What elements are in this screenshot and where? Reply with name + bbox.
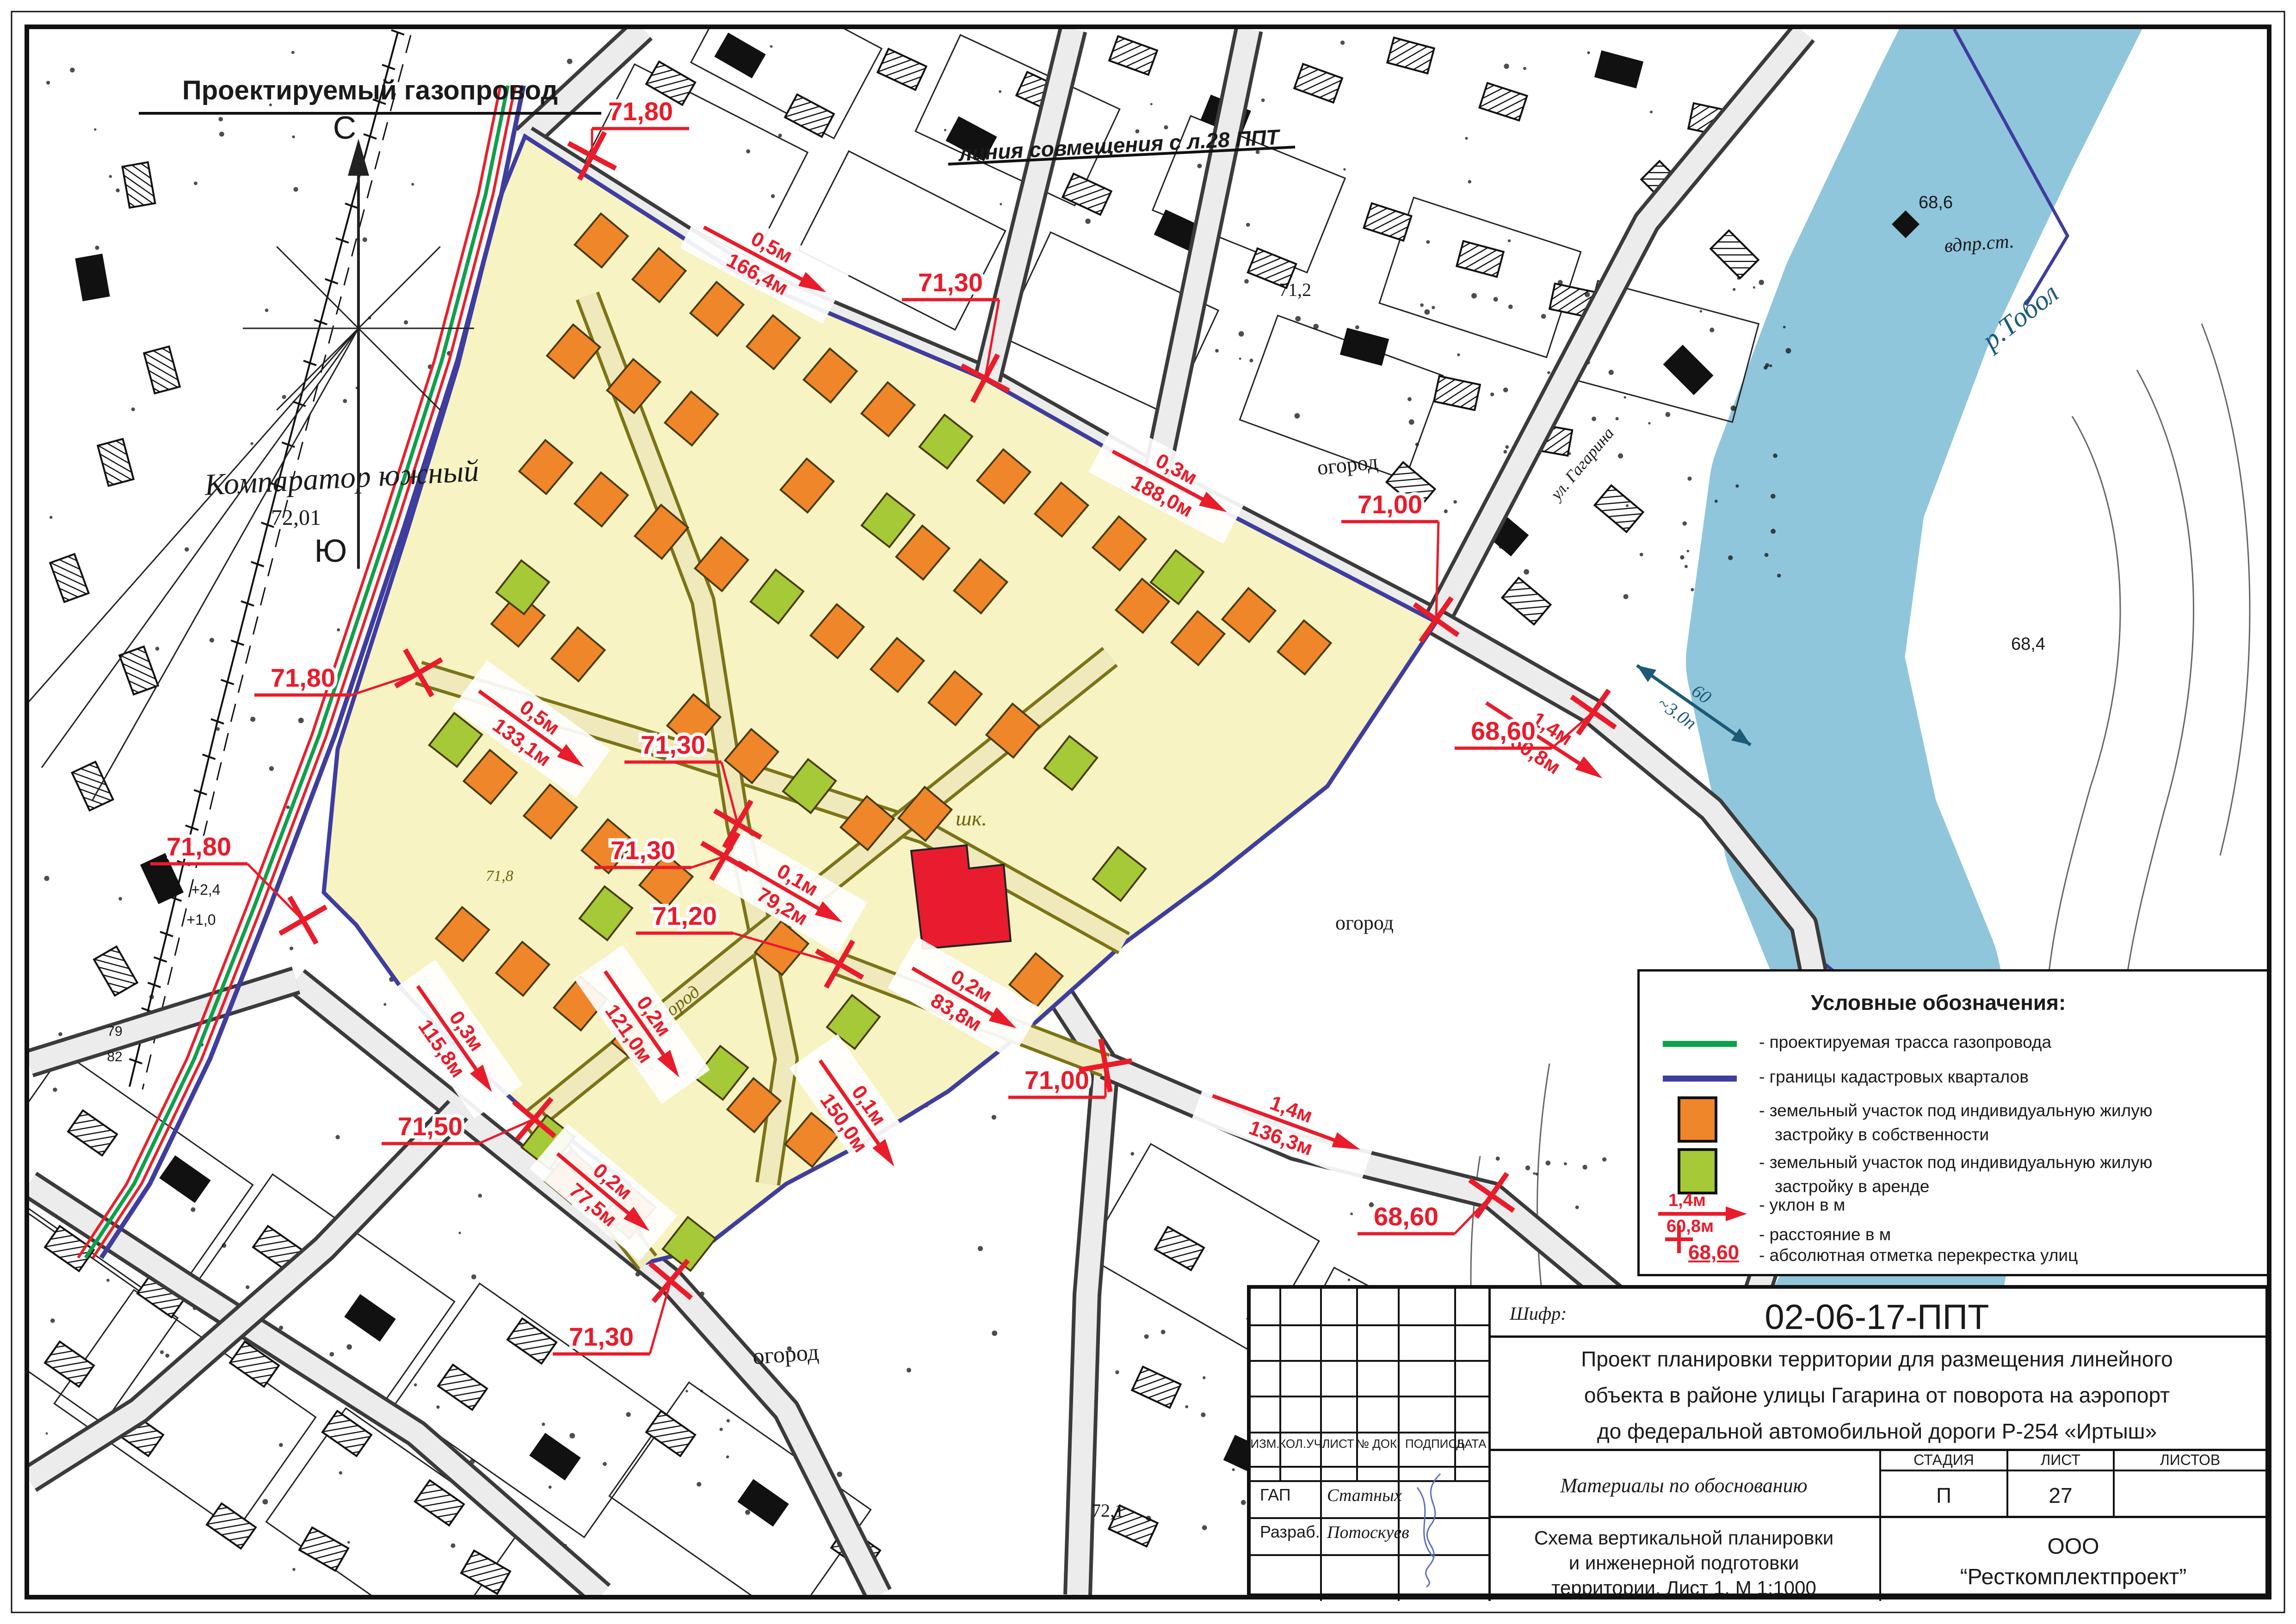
sheet-label: ЛИСТ bbox=[2008, 1452, 2113, 1469]
column-header: ЛИСТ bbox=[1317, 1437, 1359, 1451]
map-label: 71,80 bbox=[608, 97, 673, 126]
topo-label: 72,01 bbox=[271, 505, 321, 530]
map-label: 71,80 bbox=[167, 832, 231, 861]
map-label: 71,00 bbox=[1358, 490, 1422, 519]
document-code: 02-06-17-ППТ bbox=[1488, 1297, 2265, 1337]
building-symbol bbox=[94, 947, 137, 996]
building-symbol bbox=[1595, 486, 1643, 532]
legend-elevation-sample: 68,60 bbox=[1688, 1241, 1739, 1264]
plan-sheet: р.Тобол60~3.0пКомпаратор южный72,01огоро… bbox=[0, 0, 2296, 1624]
building-symbol bbox=[98, 439, 133, 486]
doc-type: Материалы по обоснованию bbox=[1488, 1474, 1879, 1497]
title-block-line bbox=[1251, 1466, 1488, 1468]
map-label: 71,30 bbox=[569, 1322, 634, 1351]
building-symbol bbox=[160, 1156, 210, 1201]
title-block-line bbox=[1320, 1480, 1322, 1601]
topo-label: 71,8 bbox=[486, 867, 513, 885]
name-statnykh: Статных bbox=[1327, 1485, 1402, 1506]
map-label: 68,60 bbox=[1471, 716, 1536, 745]
map-label: 71,20 bbox=[652, 901, 717, 930]
building-symbol bbox=[299, 1527, 348, 1570]
topo-label: 71,2 bbox=[1279, 279, 1311, 300]
building-symbol bbox=[144, 346, 179, 393]
topo-label: огород bbox=[752, 1339, 820, 1369]
sheets-label: ЛИСТОВ bbox=[2115, 1452, 2265, 1469]
building-symbol bbox=[346, 1295, 395, 1340]
building-symbol bbox=[76, 255, 109, 300]
corner-label: Проектируемый газопровод bbox=[182, 75, 558, 105]
building-symbol bbox=[1062, 174, 1111, 215]
project-title: до федеральной автомобильной дороги Р-25… bbox=[1488, 1419, 2265, 1444]
title-block-line bbox=[1454, 1289, 1456, 1480]
building-symbol bbox=[1710, 230, 1758, 278]
column-header: ПОДПИСЬ bbox=[1405, 1437, 1447, 1451]
column-header: № ДОК. bbox=[1356, 1437, 1398, 1451]
topo-label: 79 bbox=[107, 1024, 122, 1039]
building-symbol bbox=[1502, 578, 1551, 625]
legend-label: - абсолютная отметка перекрестка улиц bbox=[1759, 1244, 2078, 1267]
legend-items: - проектируемая трасса газопровода- гран… bbox=[1640, 972, 2267, 1274]
legend-swatch-square bbox=[1678, 1148, 1717, 1194]
building-symbol bbox=[1434, 376, 1480, 410]
stage-label: СТАДИЯ bbox=[1881, 1452, 2006, 1469]
legend-swatch-line bbox=[1663, 1076, 1737, 1082]
topo-label: +2,4 bbox=[191, 881, 220, 898]
map-label: 71,30 bbox=[611, 836, 675, 865]
building-symbol bbox=[646, 1411, 695, 1456]
building-symbol bbox=[45, 1341, 94, 1386]
building-symbol bbox=[461, 1550, 510, 1593]
title-block-line bbox=[1356, 1289, 1358, 1480]
company-name: ООО bbox=[1881, 1534, 2265, 1559]
title-block-line bbox=[1279, 1289, 1281, 1480]
column-header: ДАТА bbox=[1450, 1437, 1492, 1451]
topo-label: шк. bbox=[956, 806, 987, 830]
slope-mark: 1,4м136,3м bbox=[1191, 1064, 1381, 1181]
building-symbol bbox=[785, 94, 834, 137]
building-symbol bbox=[438, 1365, 487, 1409]
legend-label: - проектируемая трасса газопровода bbox=[1759, 1031, 2051, 1054]
legend-label: застройку в собственности bbox=[1775, 1123, 1989, 1146]
topo-label: 68,6 bbox=[1919, 193, 1953, 212]
title-block-line bbox=[1398, 1289, 1400, 1480]
topo-label: +1,0 bbox=[186, 911, 216, 928]
scheme-title: Схема вертикальной планировки bbox=[1488, 1527, 1879, 1549]
building-symbol bbox=[1595, 51, 1642, 87]
title-block-line bbox=[1320, 1289, 1322, 1480]
role-gap: ГАП bbox=[1260, 1485, 1291, 1505]
legend-cross-v bbox=[1677, 1225, 1681, 1253]
legend-label: - уклон в м bbox=[1759, 1193, 1845, 1217]
building-symbol bbox=[1664, 346, 1712, 394]
legend-slope-line bbox=[1658, 1212, 1728, 1216]
legend-label: - земельный участок под индивидуальную ж… bbox=[1759, 1151, 2152, 1174]
project-title: Проект планировки территории для размеще… bbox=[1488, 1347, 2265, 1372]
topo-label: 72,1 bbox=[1092, 1500, 1124, 1521]
scheme-title: и инженерной подготовки bbox=[1488, 1552, 1879, 1574]
title-block-line bbox=[1251, 1432, 1488, 1433]
compass-south: Ю bbox=[315, 533, 347, 569]
title-block: Шифр: 02-06-17-ППТ ИЗМ.КОЛ.УЧ.ЛИСТ№ ДОК.… bbox=[1247, 1285, 2269, 1597]
building-symbol bbox=[531, 1434, 580, 1479]
building-symbol bbox=[50, 554, 88, 602]
building-symbol bbox=[877, 49, 926, 90]
topo-label: огород bbox=[1335, 911, 1394, 934]
legend-swatch-line bbox=[1663, 1041, 1737, 1047]
legend-label: - земельный участок под индивидуальную ж… bbox=[1759, 1099, 2152, 1122]
sheet-value: 27 bbox=[2008, 1483, 2113, 1508]
map-label: 68,60 bbox=[1374, 1202, 1438, 1231]
title-block-line bbox=[1251, 1324, 1488, 1326]
parcel-outline bbox=[54, 1290, 315, 1531]
building-symbol bbox=[1480, 83, 1527, 120]
legend-label: - расстояние в м bbox=[1759, 1223, 1891, 1246]
topo-label: 82 bbox=[107, 1049, 122, 1064]
building-symbol bbox=[1457, 241, 1503, 277]
title-block-line bbox=[1488, 1516, 2265, 1518]
signature bbox=[1403, 1469, 1459, 1589]
topo-label: 68,4 bbox=[2011, 634, 2045, 654]
legend-slope-top: 1,4м bbox=[1668, 1191, 1706, 1211]
building-symbol bbox=[123, 162, 155, 208]
title-block-line bbox=[1488, 1449, 2265, 1451]
map-label: 71,80 bbox=[271, 663, 335, 692]
building-symbol bbox=[1109, 36, 1157, 74]
legend-label: - границы кадастровых кварталов bbox=[1759, 1065, 2029, 1089]
map-label: 71,50 bbox=[398, 1112, 463, 1141]
building-symbol bbox=[1155, 1227, 1204, 1270]
building-symbol bbox=[1387, 37, 1434, 73]
building-symbol bbox=[1132, 1367, 1180, 1408]
title-block-line bbox=[1251, 1360, 1488, 1362]
building-symbol bbox=[207, 1503, 256, 1548]
topo-label: огород bbox=[1316, 449, 1379, 479]
building-symbol bbox=[1341, 329, 1388, 364]
legend-swatch-square bbox=[1678, 1096, 1717, 1143]
role-razrab: Разраб. bbox=[1260, 1522, 1320, 1542]
building-symbol bbox=[1294, 64, 1342, 102]
building-symbol bbox=[507, 1318, 556, 1363]
building-symbol bbox=[68, 1110, 117, 1155]
map-label: 71,30 bbox=[918, 268, 983, 297]
map-label: 71,30 bbox=[641, 730, 705, 759]
building-symbol bbox=[72, 762, 113, 810]
building-symbol bbox=[322, 1411, 371, 1456]
building-symbol bbox=[739, 1480, 788, 1525]
legend-slope-arrow bbox=[1726, 1206, 1747, 1221]
company-name: “Ресткомплектпроект” bbox=[1881, 1564, 2265, 1590]
building-symbol bbox=[1364, 203, 1412, 240]
legend: Условные обозначения: - проектируемая тр… bbox=[1637, 969, 2269, 1276]
building-symbol bbox=[119, 646, 158, 695]
legend-slope-bottom: 60,8м bbox=[1666, 1217, 1714, 1236]
parcel-outline bbox=[266, 1408, 520, 1624]
column-header: КОЛ.УЧ. bbox=[1279, 1437, 1321, 1451]
stage-value: П bbox=[1881, 1483, 2006, 1508]
project-title: объекта в районе улицы Гагарина от повор… bbox=[1488, 1383, 2265, 1408]
compass-north: С bbox=[333, 110, 357, 146]
scheme-title: территории. Лист 1. М 1:1000 bbox=[1488, 1577, 1879, 1599]
title-block-line bbox=[1251, 1396, 1488, 1397]
name-potoskuev: Потоскуев bbox=[1327, 1522, 1409, 1543]
title-block-line bbox=[1879, 1470, 2265, 1471]
building-symbol bbox=[716, 34, 765, 77]
